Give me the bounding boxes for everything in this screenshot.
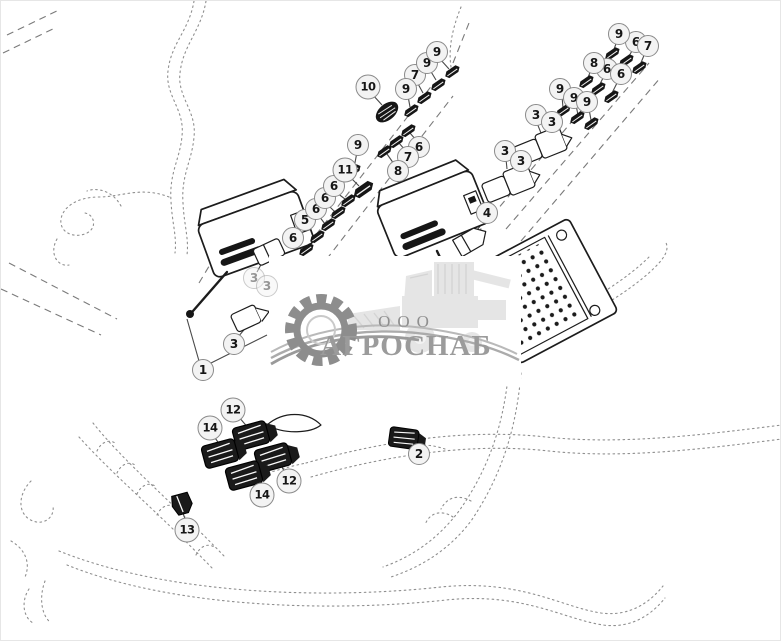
watermark-company-name: АГРОСНАБ xyxy=(320,330,491,363)
grommet xyxy=(372,98,402,127)
harness-clip xyxy=(170,492,194,516)
watermark-company-type: ООО xyxy=(378,312,436,332)
parts-diagram-page: ООО АГРОСНАБ 123333333456666666677788999… xyxy=(0,0,781,641)
bottom-connectors xyxy=(170,415,427,517)
watermark: ООО АГРОСНАБ xyxy=(269,256,521,386)
module-1-antenna xyxy=(186,272,227,318)
